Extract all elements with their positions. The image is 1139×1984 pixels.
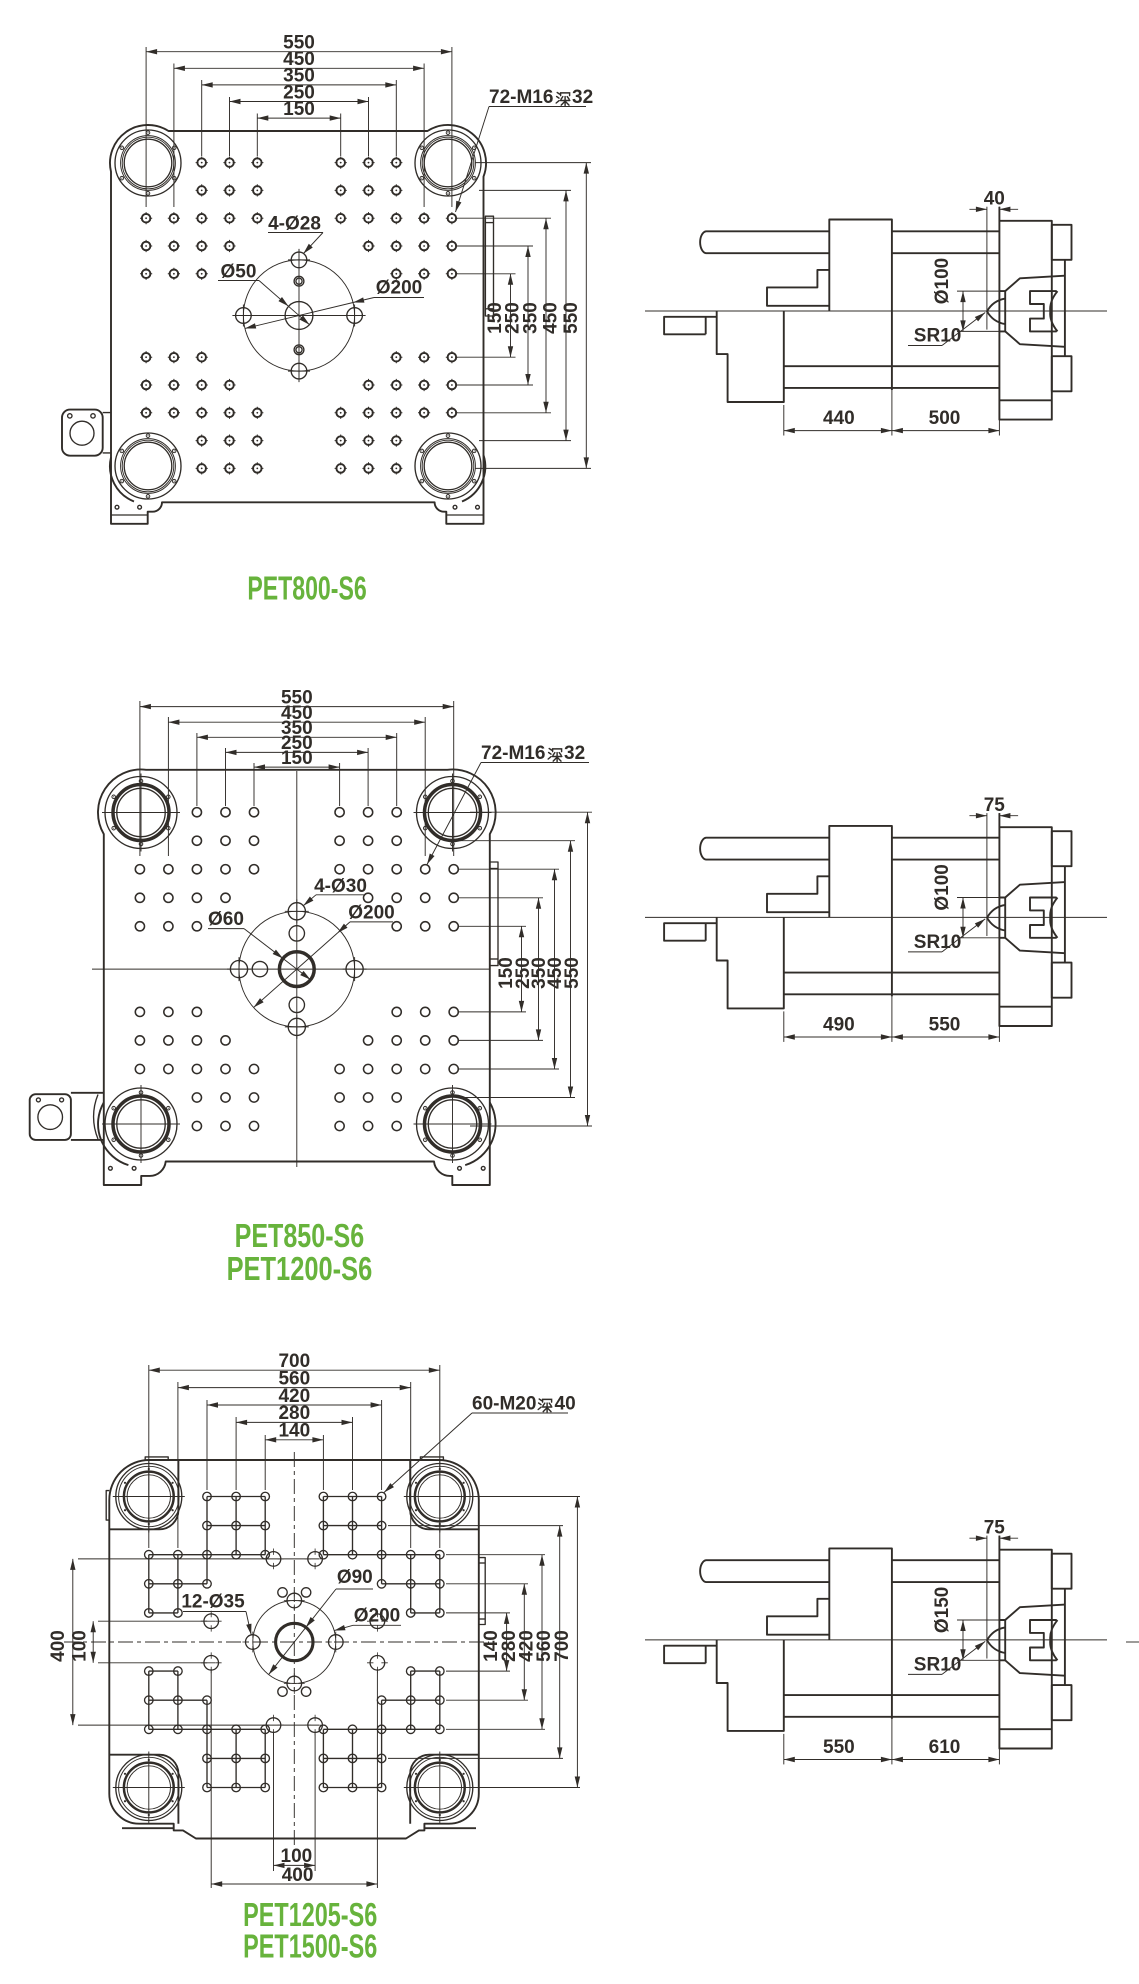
- svg-text:75: 75: [984, 795, 1006, 816]
- svg-text:Ø200: Ø200: [376, 278, 422, 299]
- svg-text:SR10: SR10: [914, 932, 962, 953]
- svg-text:75: 75: [984, 1517, 1006, 1538]
- svg-text:4-Ø28: 4-Ø28: [268, 214, 321, 235]
- svg-text:150: 150: [281, 748, 313, 769]
- svg-text:PET800-S6: PET800-S6: [247, 571, 366, 608]
- svg-text:40: 40: [555, 1394, 576, 1415]
- svg-text:Ø50: Ø50: [221, 262, 257, 283]
- svg-text:PET850-S6: PET850-S6: [235, 1218, 365, 1255]
- svg-text:350: 350: [521, 302, 542, 334]
- svg-text:SR10: SR10: [914, 1654, 962, 1675]
- svg-text:Ø100: Ø100: [932, 258, 953, 304]
- svg-text:500: 500: [929, 408, 961, 429]
- svg-text:550: 550: [823, 1737, 855, 1758]
- svg-text:700: 700: [552, 1630, 573, 1662]
- svg-text:140: 140: [278, 1421, 310, 1442]
- svg-text:PET1200-S6: PET1200-S6: [227, 1251, 373, 1288]
- svg-text:60-M20: 60-M20: [472, 1394, 536, 1415]
- svg-text:490: 490: [823, 1014, 855, 1035]
- svg-text:Ø200: Ø200: [348, 903, 394, 924]
- svg-text:72-M16: 72-M16: [481, 743, 545, 764]
- svg-text:Ø60: Ø60: [208, 909, 244, 930]
- svg-text:Ø200: Ø200: [354, 1606, 400, 1627]
- svg-text:4-Ø30: 4-Ø30: [314, 876, 367, 897]
- svg-text:550: 550: [929, 1014, 961, 1035]
- svg-text:Ø150: Ø150: [932, 1587, 953, 1633]
- svg-text:550: 550: [562, 957, 583, 989]
- svg-text:400: 400: [282, 1865, 314, 1886]
- svg-text:PET1500-S6: PET1500-S6: [243, 1929, 377, 1966]
- svg-text:100: 100: [70, 1630, 91, 1662]
- svg-text:100: 100: [281, 1846, 313, 1867]
- svg-text:SR10: SR10: [914, 326, 962, 347]
- svg-text:400: 400: [48, 1630, 69, 1662]
- svg-text:550: 550: [561, 302, 582, 334]
- svg-text:Ø90: Ø90: [337, 1567, 373, 1588]
- svg-text:150: 150: [283, 99, 315, 120]
- svg-text:440: 440: [823, 408, 855, 429]
- svg-text:32: 32: [564, 743, 585, 764]
- svg-text:40: 40: [984, 189, 1005, 210]
- svg-text:450: 450: [541, 302, 562, 334]
- svg-text:610: 610: [929, 1737, 961, 1758]
- svg-text:12-Ø35: 12-Ø35: [181, 1591, 245, 1612]
- svg-text:Ø100: Ø100: [932, 864, 953, 910]
- svg-text:72-M16: 72-M16: [489, 87, 553, 108]
- svg-text:32: 32: [572, 87, 593, 108]
